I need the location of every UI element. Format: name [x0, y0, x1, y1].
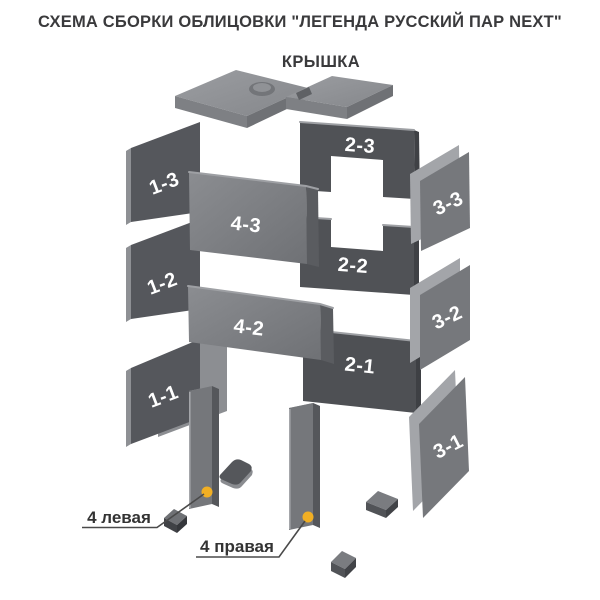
- post-right: [289, 403, 320, 530]
- lid-label: КРЫШКА: [282, 53, 360, 71]
- callout-right-post: 4 правая: [196, 521, 305, 557]
- bracket-plate-left: [219, 459, 252, 488]
- panel-2-2-label: 2-2: [337, 254, 369, 278]
- post-right-front-face: [289, 403, 313, 530]
- callout-right-label: 4 правая: [200, 537, 274, 556]
- callout-left-label: 4 левая: [87, 508, 151, 527]
- panel-4-2-edge: [320, 304, 334, 364]
- foot-cube-bottom: [331, 551, 356, 578]
- lid-right-half: [286, 76, 393, 119]
- post-left-marker-dot: [202, 487, 213, 498]
- panel-4-3-label: 4-3: [230, 212, 263, 237]
- panel-2-3-label: 2-3: [344, 134, 376, 158]
- panel-1-3-edge: [126, 148, 131, 225]
- panel-1-1-edge: [126, 368, 131, 447]
- panel-2-3-face: [300, 122, 415, 199]
- panel-1-3: 1-3: [126, 122, 200, 225]
- post-left: [189, 386, 219, 509]
- post-left-side-face: [212, 386, 219, 507]
- panel-2-1-label: 2-1: [344, 353, 377, 378]
- assembly-diagram: СХЕМА СБОРКИ ОБЛИЦОВКИ "ЛЕГЕНДА РУССКИЙ …: [0, 0, 600, 600]
- post-right-side-face: [313, 403, 320, 528]
- panel-4-3: 4-3: [189, 172, 319, 267]
- lid-left-notch-inner: [253, 83, 271, 92]
- diagram-canvas: СХЕМА СБОРКИ ОБЛИЦОВКИ "ЛЕГЕНДА РУССКИЙ …: [0, 0, 600, 600]
- panel-4-2-label: 4-2: [232, 315, 265, 341]
- panel-1-2-edge: [126, 245, 131, 322]
- page-title: СХЕМА СБОРКИ ОБЛИЦОВКИ "ЛЕГЕНДА РУССКИЙ …: [38, 12, 562, 31]
- panel-4-3-edge: [306, 186, 319, 267]
- foot-block-right: [366, 491, 398, 518]
